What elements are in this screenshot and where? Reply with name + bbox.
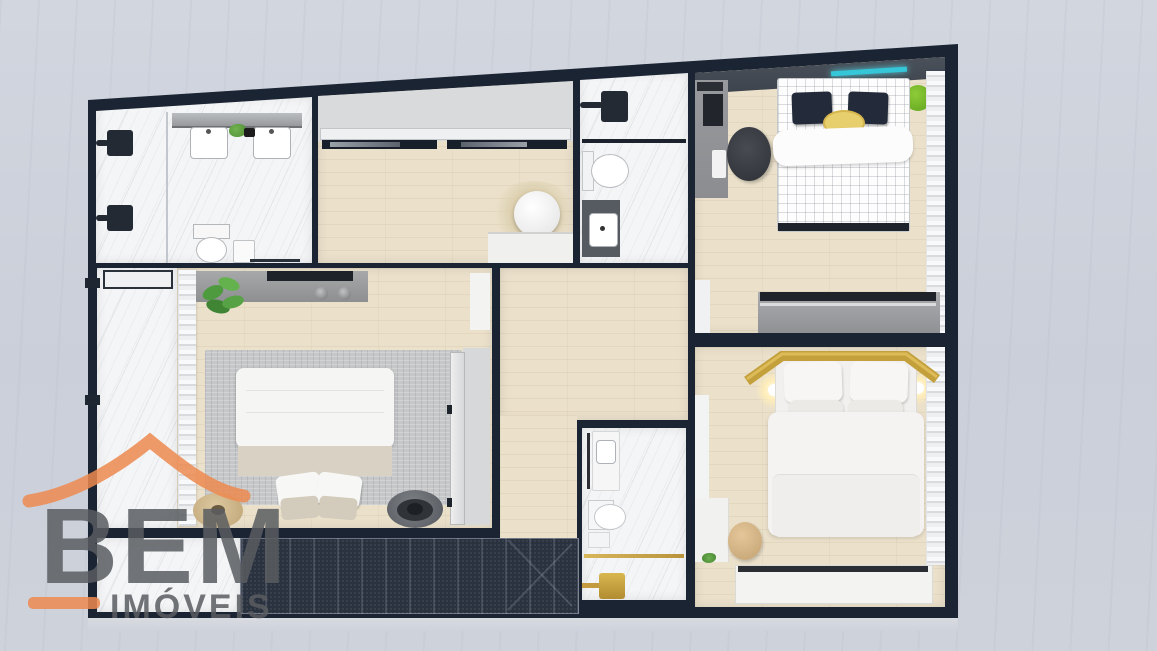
shower-head [107,130,133,156]
room-bedroom3-floor [695,347,945,607]
table-decor [211,505,225,515]
desk-printer [697,82,723,91]
tall-cabinet-white [470,273,490,330]
wardrobe-hanging-rail [447,140,567,149]
desk-monitor [703,94,723,126]
shower-glass-divider [166,112,168,263]
wood-stool [728,522,762,560]
desk-keyboard [712,150,726,178]
room-bedroom1-floor [695,57,945,333]
plant-large-leaf [202,278,244,320]
hat-crown [407,503,423,515]
console-shelf-line [760,303,936,306]
staircase [240,538,579,614]
double-bed-white [775,355,917,535]
window-curtain [178,270,196,526]
room-hallway-floor-lower [500,415,577,538]
shower-head [107,205,133,231]
window-curtain [926,347,945,565]
door-leaf-white [695,280,710,333]
pillow-white [783,361,842,403]
door-hinge [447,498,452,507]
wall-hinge-mark [85,395,100,405]
toilet-bowl [196,237,227,263]
side-table-wicker [193,493,243,528]
duvet-fold [772,126,913,167]
vanity-sink [596,440,616,464]
side-table-dark [387,490,443,528]
stair-landing-floor [97,538,240,612]
faucet [600,226,605,231]
hanging-clothes [461,142,527,147]
hanging-clothes [330,142,400,147]
room-closet-floor [318,81,573,263]
gold-glass-divider [584,554,684,558]
pillow-white [849,361,908,403]
low-cabinet [488,232,573,265]
foundation-slab-edge [88,618,958,631]
wardrobe-shelf-front [320,128,571,140]
room-gold-bathroom-floor [582,428,686,600]
counter-accessory [244,128,255,137]
gold-shower-head [599,573,625,599]
round-knob [315,287,328,300]
room-hallway-floor [500,268,688,420]
faucet [206,129,211,134]
pillow-beige [280,495,320,520]
laptop-dark [267,271,353,281]
wall-hinge-mark [85,278,100,288]
floor-plan-stage: BEM IMÓVEIS [0,0,1157,651]
tv-console [758,292,940,333]
pouf-ottoman [514,191,560,237]
shower-head [601,91,628,122]
doorway-strip [463,348,490,525]
duvet-fold-line [246,390,384,391]
wall-shelf-tray [103,270,173,289]
toilet-bowl [594,504,626,530]
desk [695,80,728,198]
tv-screen [760,292,936,301]
pillow-beige [318,495,358,520]
bath-shelf [588,532,610,548]
room-master-bathroom-floor [96,97,312,263]
shower-arm [580,102,603,108]
office-chair [727,127,771,181]
round-knob [338,287,351,300]
faucet [269,129,274,134]
double-bed-plaid [777,78,910,232]
door-hinge [447,405,452,414]
sliding-door-panel [450,352,465,525]
corridor-floor [97,268,177,528]
shower-glass-divider [582,139,686,143]
towel-rail [587,433,590,489]
toilet-bowl [591,154,629,188]
bed-footboard [778,223,909,231]
duvet-fold [772,474,920,537]
duvet-fold-line [246,412,384,413]
tv-console [735,565,933,604]
room-ensuite-bathroom-floor [580,73,688,263]
wardrobe-hanging-rail [322,140,437,149]
tv-screen [738,566,928,572]
room-bedroom2-floor [177,268,492,528]
duvet [236,368,394,448]
door-threshold [250,259,300,262]
